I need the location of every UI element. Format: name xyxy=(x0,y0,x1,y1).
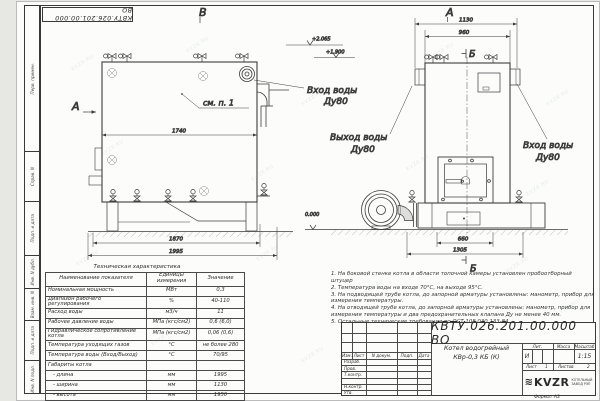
kvzr-spring-icon: ≋ xyxy=(525,377,532,388)
col-header-value: Значение xyxy=(197,272,245,286)
tb-lit-header: Лит. xyxy=(533,344,543,349)
note-item: 1. На боковой стенке котла в области топ… xyxy=(331,271,595,284)
svg-text:Ду80: Ду80 xyxy=(535,153,560,163)
margin-cell: Инв. N подл. xyxy=(25,361,39,397)
table-row: - длинамм1995 xyxy=(46,370,245,380)
fitting-icon xyxy=(199,72,208,81)
margin-label: Подп. и дата xyxy=(30,326,35,355)
table-row: Диапазон рабочего регулирования%40-110 xyxy=(46,296,245,308)
svg-text:960: 960 xyxy=(459,30,470,36)
title-block: Изм. Лист N докум. Подп. Дата Разраб. Пр… xyxy=(341,322,596,396)
svg-text:+1.900: +1.900 xyxy=(326,50,345,56)
note-item: 2. Температура воды на входе 70°С, на вы… xyxy=(331,285,595,292)
drain-valve-icon xyxy=(409,191,416,203)
tb-scale-header: Масштаб xyxy=(575,344,595,349)
tb-role: Т.контр. xyxy=(344,372,362,377)
view-a-label: А xyxy=(445,6,454,19)
svg-text:1870: 1870 xyxy=(169,237,183,243)
valve-icon xyxy=(119,54,132,63)
drain-valve-icon xyxy=(110,190,117,202)
tb-mass-header: Масса xyxy=(557,344,570,349)
air-duct-elbow xyxy=(398,203,417,227)
svg-text:660: 660 xyxy=(458,237,469,243)
svg-text:Ду80: Ду80 xyxy=(350,145,375,155)
furnace-door xyxy=(438,157,493,203)
drain-valve-icon xyxy=(516,191,523,203)
tb-sheet-value: 1 xyxy=(545,364,548,369)
tech-table-title: Техническая характеристика xyxy=(45,264,229,270)
section-a-label: А xyxy=(71,100,80,113)
valve-icon xyxy=(236,54,249,63)
tb-header-izm: Изм. xyxy=(342,353,352,358)
company-name: КОТЕЛЬНЫЙ ЗАВОД РЭП xyxy=(571,379,592,386)
note-item: 3. На подводящей трубе котла, до запорно… xyxy=(331,292,595,305)
table-row: Расход водым3/ч11 xyxy=(46,308,245,318)
tb-lit-value: И xyxy=(525,353,530,360)
dimension-1740: 1740 xyxy=(102,122,257,139)
tb-role: Утв. xyxy=(344,390,353,395)
drain-valve-icon xyxy=(134,190,141,202)
drain-valve-icon xyxy=(190,190,197,202)
tb-role: Разраб. xyxy=(344,359,360,364)
tb-header-doc: N докум. xyxy=(372,353,391,358)
note-item: 4. На отводящей трубе котла, до запорной… xyxy=(331,305,595,318)
margin-label: Взам. инв. N xyxy=(30,291,35,318)
tb-sheets-value: 2 xyxy=(587,364,590,369)
margin-cell: Подп. и дата xyxy=(25,202,39,256)
see-note-callout: см. п. 1 xyxy=(181,93,249,108)
format-label: Формат А3 xyxy=(500,395,594,400)
valve-icon xyxy=(425,55,438,64)
margin-column: Перв. примен. Справ. N Подп. и дата Инв.… xyxy=(24,5,40,394)
tb-header-sign: Подп. xyxy=(401,353,414,358)
door-handle xyxy=(446,180,461,184)
valve-icon xyxy=(194,54,207,63)
product-name: Котел водогрейный КВр-0,3 КБ (К) xyxy=(431,345,522,362)
table-row: Температура воды (Вход/Выход)°С70/95 xyxy=(46,350,245,360)
tb-role: Н.контр. xyxy=(344,384,363,389)
table-row: Температура уходящих газов°Сне более 280 xyxy=(46,340,245,350)
inlet-left-callout: Вход воды xyxy=(307,86,357,96)
margin-label: Перв. примен. xyxy=(30,63,35,94)
technical-notes: 1. На боковой стенке котла в области топ… xyxy=(331,271,595,326)
elevation-check-icon xyxy=(310,225,316,230)
tech-table: Наименование показателя Единицы измерени… xyxy=(45,272,245,401)
table-row: Рабочее давление водыМПа (кгс/см2)0,6 (6… xyxy=(46,318,245,328)
boiler-side-view: 1740 1870 1995 В А см. п. 1 xyxy=(71,6,293,260)
fitting-icon xyxy=(200,187,209,196)
svg-text:1995: 1995 xyxy=(169,249,183,255)
valve-icon xyxy=(436,55,449,64)
col-header-name: Наименование показателя xyxy=(46,272,147,286)
margin-cell: Инв. N дубл. xyxy=(25,256,39,289)
tb-sheets-label: Листов xyxy=(558,364,574,369)
svg-text:+2.065: +2.065 xyxy=(312,37,331,43)
margin-label: Инв. N дубл. xyxy=(30,258,35,285)
svg-text:1740: 1740 xyxy=(172,129,186,135)
blower-fan-icon xyxy=(362,191,401,230)
tb-sheet-label: Лист xyxy=(526,364,537,369)
water-inlet-flange-icon xyxy=(240,67,255,82)
tech-characteristics: Техническая характеристика Наименование … xyxy=(45,264,229,401)
dimension-1130: 1130 xyxy=(415,18,517,69)
kvzr-logo-text: KVZR xyxy=(534,376,569,389)
side-flange-icon xyxy=(415,69,520,85)
tb-scale-value: 1:15 xyxy=(578,353,591,360)
svg-text:1305: 1305 xyxy=(453,248,467,254)
outlet-callout: Выход воды xyxy=(330,133,387,143)
table-row: - ширинамм1130 xyxy=(46,380,245,390)
drain-valve-icon xyxy=(165,190,172,202)
company-logo: ≋ KVZR КОТЕЛЬНЫЙ ЗАВОД РЭП xyxy=(524,372,593,393)
table-row: Гидравлическое сопротивление котлаМПа (к… xyxy=(46,328,245,340)
tb-role: Пров. xyxy=(344,366,356,371)
fitting-icon xyxy=(108,156,117,165)
svg-text:1130: 1130 xyxy=(459,18,473,24)
fitting-icon xyxy=(108,69,117,78)
margin-cell: Справ. N xyxy=(25,152,39,202)
inlet-right-callout: Вход воды xyxy=(523,141,573,151)
margin-label: Подп. и дата xyxy=(30,214,35,243)
drain-valve-icon xyxy=(261,184,268,196)
table-row: Габариты котла xyxy=(46,360,245,370)
svg-text:см. п. 1: см. п. 1 xyxy=(203,99,234,108)
margin-cell: Подп. и дата xyxy=(25,321,39,361)
table-row: - высотамм1950 xyxy=(46,390,245,400)
tb-header-list: Лист xyxy=(354,353,365,358)
svg-text:Б: Б xyxy=(469,49,476,60)
section-b-top: Б xyxy=(462,49,477,60)
margin-cell: Перв. примен. xyxy=(25,6,39,152)
base-frame xyxy=(418,203,545,228)
margin-label: Инв. N подл. xyxy=(30,365,35,393)
margin-cell: Взам. инв. N xyxy=(25,289,39,321)
boiler-drawing: 1740 1870 1995 В А см. п. 1 xyxy=(40,5,594,273)
valve-icon xyxy=(104,54,117,63)
tb-header-date: Дата xyxy=(419,353,430,358)
margin-label: Справ. N xyxy=(30,167,35,186)
svg-text:0.000: 0.000 xyxy=(305,212,319,218)
table-row: Номинальная мощностьМВт0,3 xyxy=(46,286,245,296)
svg-text:Ду80: Ду80 xyxy=(323,97,348,107)
col-header-units: Единицы измерения xyxy=(147,272,197,286)
blueprint-page: { "watermark": "KVZR.RU", "stamp": { "do… xyxy=(0,0,600,400)
pipe-callouts: Вход воды Ду80 Выход воды Ду80 Вход воды… xyxy=(254,80,573,163)
valve-icon xyxy=(485,55,498,64)
document-number: КВТУ.026.201.00.000 ВО xyxy=(431,323,595,343)
